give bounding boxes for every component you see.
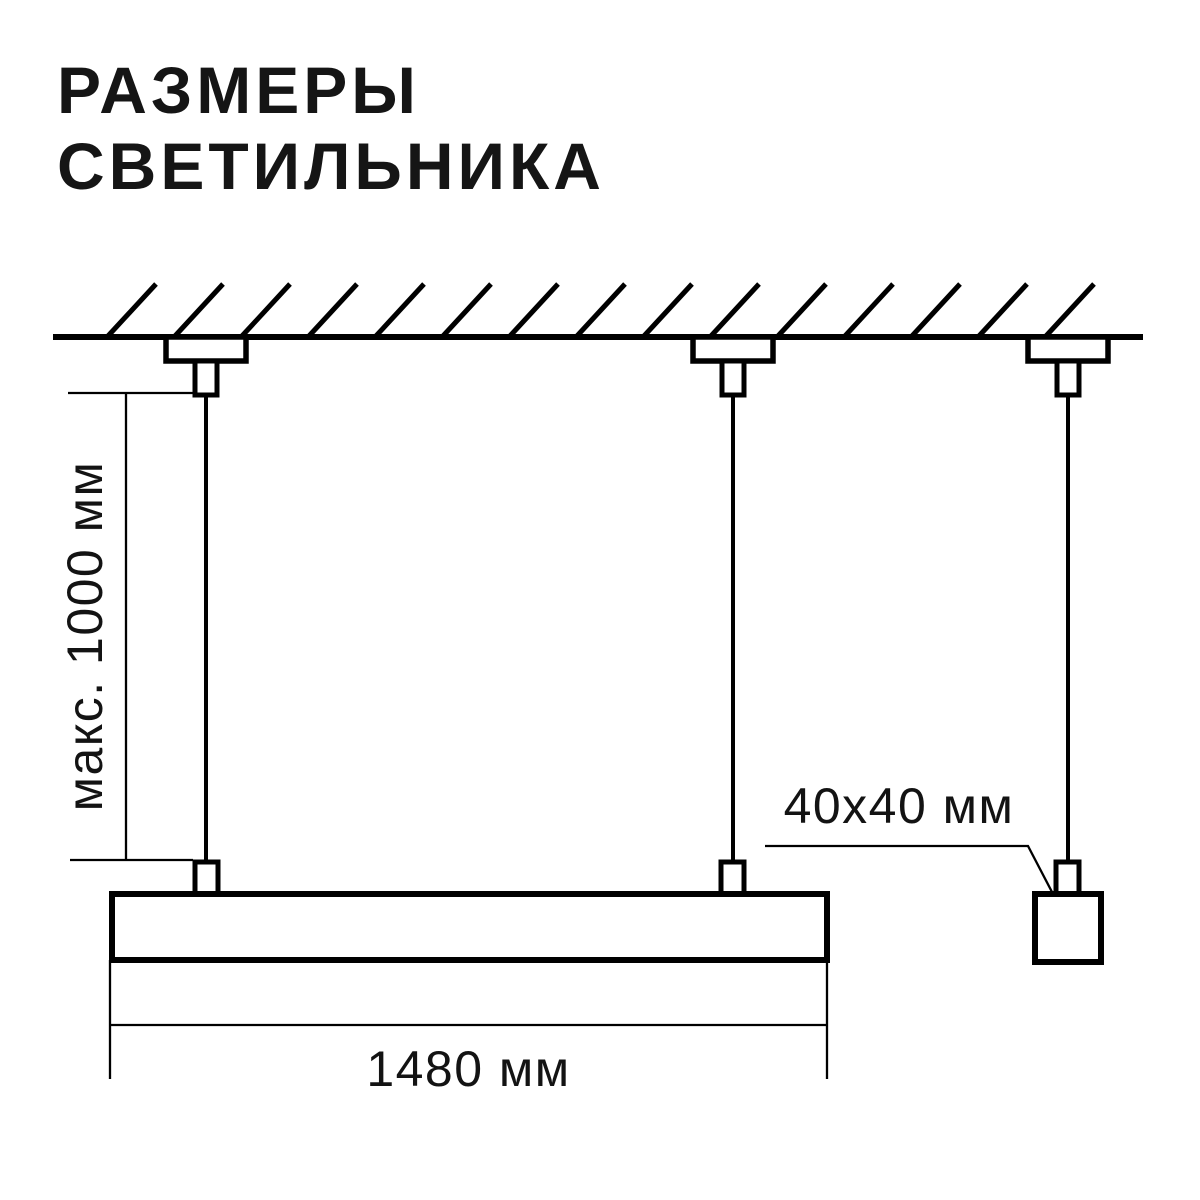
luminaire-dimensions-infographic: РАЗМЕРЫ СВЕТИЛЬНИКА bbox=[0, 0, 1200, 1200]
profile-size-label: 40x40 мм bbox=[763, 779, 1035, 833]
cable-gripper-right-icon bbox=[1056, 862, 1079, 894]
luminaire-bar bbox=[112, 894, 827, 960]
luminaire-suspension-diagram bbox=[0, 0, 1200, 1200]
cable-gripper-middle-icon bbox=[721, 862, 744, 894]
ceiling-mount-right bbox=[1028, 337, 1108, 395]
cable-connector-icon bbox=[1057, 361, 1079, 395]
cable-connector-icon bbox=[195, 361, 217, 395]
cable-gripper-left-icon bbox=[195, 862, 218, 894]
canopy-icon bbox=[166, 337, 246, 361]
leader-line bbox=[765, 846, 1052, 892]
canopy-icon bbox=[1028, 337, 1108, 361]
ceiling-hatching-icon bbox=[108, 284, 1094, 336]
luminaire-length-dimension-label: 1480 мм bbox=[110, 1042, 827, 1096]
max-height-dimension-label: макс. 1000 мм bbox=[56, 461, 114, 812]
ceiling-mount-left bbox=[166, 337, 246, 395]
profile-cross-section-square bbox=[1035, 894, 1101, 962]
canopy-icon bbox=[693, 337, 773, 361]
cable-connector-icon bbox=[722, 361, 744, 395]
ceiling-mount-middle bbox=[693, 337, 773, 395]
